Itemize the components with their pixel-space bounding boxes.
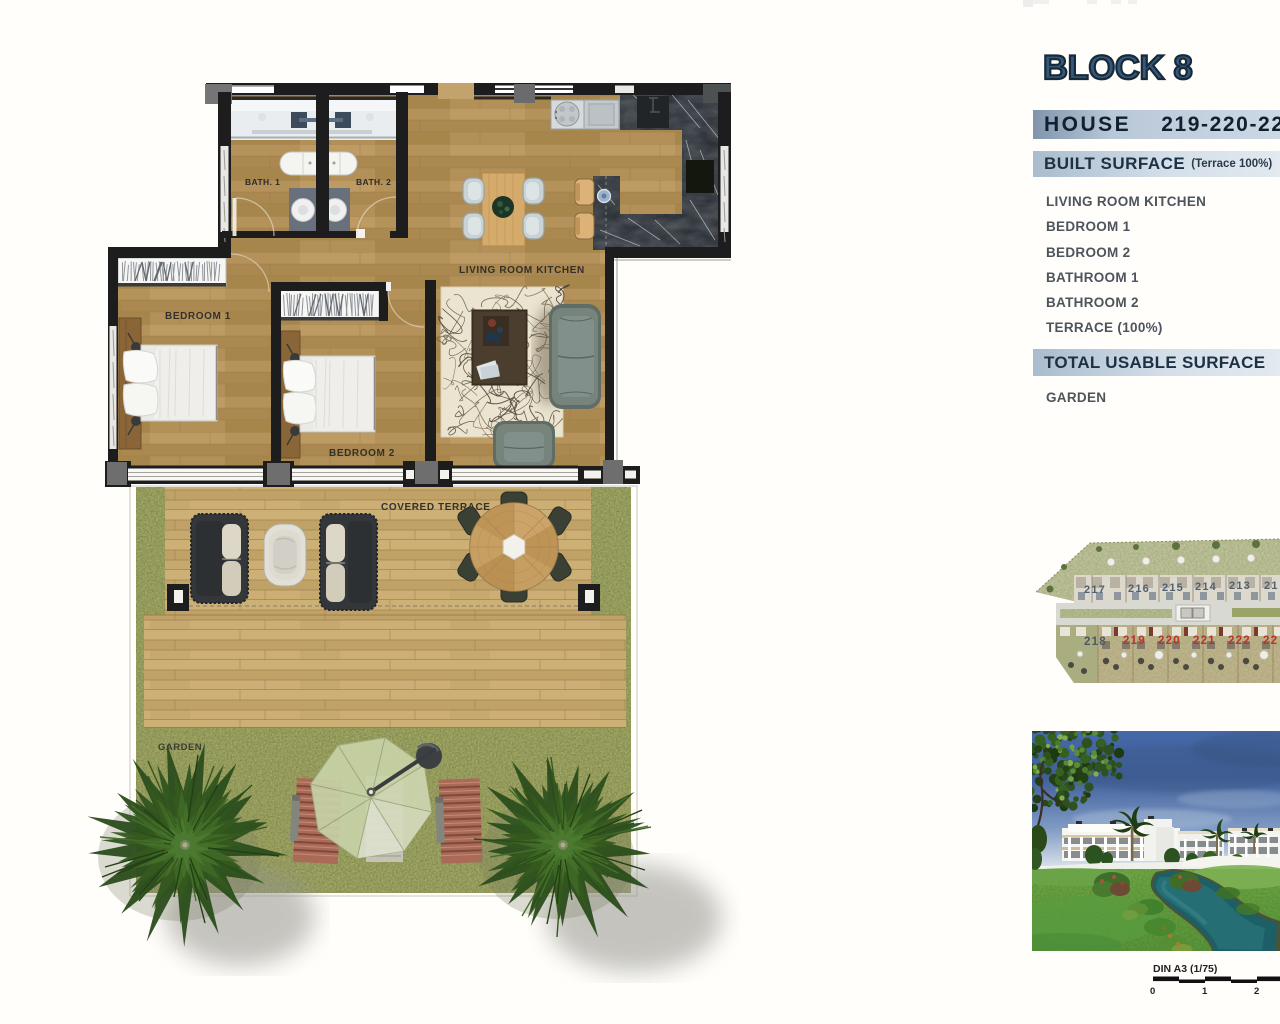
- svg-text:213: 213: [1229, 580, 1251, 592]
- svg-text:BATH. 2: BATH. 2: [356, 177, 391, 187]
- svg-text:2: 2: [1254, 986, 1259, 997]
- svg-text:218: 218: [1084, 636, 1107, 648]
- svg-text:GARDEN: GARDEN: [158, 742, 202, 753]
- svg-text:LIVING ROOM KITCHEN: LIVING ROOM KITCHEN: [459, 265, 585, 276]
- svg-text:217: 217: [1084, 584, 1106, 596]
- svg-text:0: 0: [1150, 986, 1155, 997]
- svg-text:22: 22: [1263, 635, 1278, 647]
- svg-text:220: 220: [1158, 635, 1181, 647]
- svg-text:1: 1: [1202, 986, 1208, 997]
- svg-text:BATH. 1: BATH. 1: [245, 177, 280, 187]
- svg-text:215: 215: [1162, 582, 1184, 594]
- svg-text:BEDROOM 1: BEDROOM 1: [165, 311, 231, 322]
- svg-text:216: 216: [1128, 583, 1150, 595]
- svg-text:221: 221: [1193, 635, 1216, 647]
- svg-text:219: 219: [1123, 635, 1146, 647]
- svg-text:214: 214: [1195, 581, 1217, 593]
- svg-text:BEDROOM 2: BEDROOM 2: [329, 448, 395, 459]
- svg-text:222: 222: [1228, 635, 1251, 647]
- svg-text:21: 21: [1264, 580, 1279, 592]
